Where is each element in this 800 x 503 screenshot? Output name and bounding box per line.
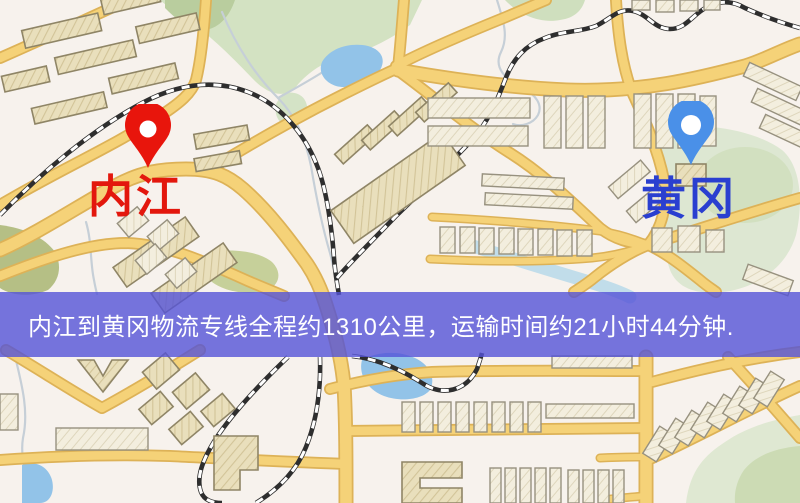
origin-pin-icon[interactable]	[120, 104, 176, 170]
map-canvas: 内江 黄冈 内江到黄冈物流专线全程约1310公里，运输时间约21小时44分钟.	[0, 0, 800, 503]
map-background	[0, 0, 800, 503]
origin-place-label: 内江	[88, 174, 184, 219]
destination-pin-icon[interactable]	[663, 101, 719, 167]
destination-place-label: 黄冈	[641, 176, 737, 221]
route-info-text: 内江到黄冈物流专线全程约1310公里，运输时间约21小时44分钟.	[0, 307, 734, 342]
route-info-banner: 内江到黄冈物流专线全程约1310公里，运输时间约21小时44分钟.	[0, 292, 800, 357]
